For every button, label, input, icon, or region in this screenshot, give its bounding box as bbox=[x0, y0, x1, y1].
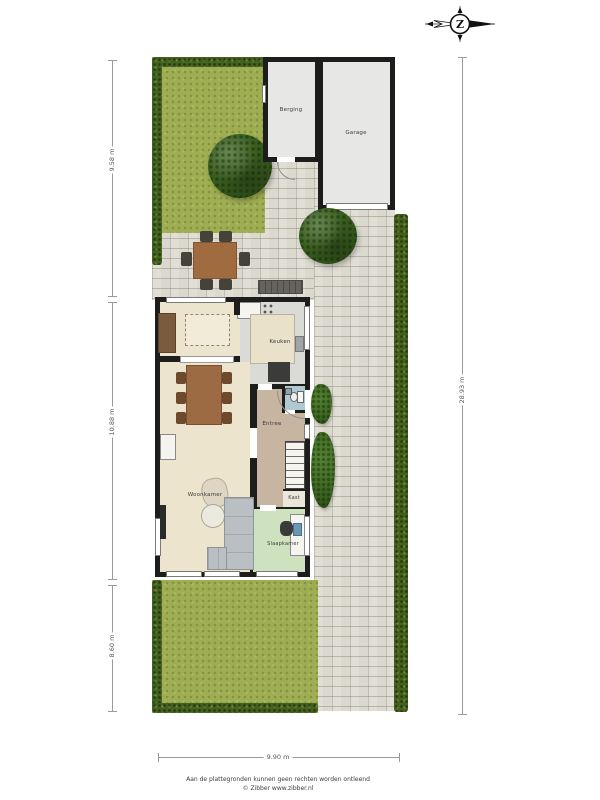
dimension-tick bbox=[108, 296, 117, 297]
keuken-label: Keuken bbox=[269, 339, 290, 345]
berging-window bbox=[262, 85, 266, 103]
footer: Aan de plattegronden kunnen geen rechten… bbox=[78, 775, 478, 794]
dimension-tick bbox=[108, 60, 117, 61]
window-bottom-bedroom bbox=[256, 571, 298, 577]
outdoor-chair bbox=[219, 279, 232, 290]
corner-sofa bbox=[207, 547, 227, 570]
desk-chair bbox=[280, 521, 293, 536]
dimension-tick bbox=[458, 57, 467, 58]
opening-kitchen-hall bbox=[258, 384, 272, 390]
laptop-icon bbox=[293, 523, 302, 536]
footer-credit: © Zibber www.zibber.nl bbox=[78, 784, 478, 793]
dimension-tick bbox=[158, 753, 159, 762]
outdoor-chair bbox=[181, 252, 192, 266]
tv-unit bbox=[160, 505, 166, 539]
dining-rug-dashed bbox=[185, 314, 230, 346]
dimension-tick bbox=[108, 579, 117, 580]
dimension-line-left-top bbox=[112, 60, 113, 297]
berging-label: Berging bbox=[280, 107, 303, 113]
opening-dining-living bbox=[180, 356, 234, 363]
compass-icon: Z bbox=[424, 4, 496, 44]
bush-icon bbox=[311, 432, 335, 508]
dining-chair bbox=[222, 372, 232, 384]
side-table-round bbox=[201, 504, 225, 528]
toilet-sink bbox=[285, 388, 292, 395]
kitchen-appliance bbox=[295, 336, 304, 352]
hedge-bottom-left bbox=[152, 580, 162, 713]
dimension-tick bbox=[399, 753, 400, 762]
dining-chair bbox=[176, 372, 186, 384]
closet-wall bbox=[283, 489, 305, 491]
dimension-line-left-middle bbox=[112, 302, 113, 580]
dimension-label-left-middle: 10.88 m bbox=[107, 406, 117, 437]
slaapkamer-label: Slaapkamer bbox=[267, 541, 299, 547]
window-kitchen-right bbox=[304, 306, 310, 350]
dimension-label-left-bottom: 8.60 m bbox=[107, 633, 117, 660]
dining-chair bbox=[176, 412, 186, 424]
compass-letter: Z bbox=[456, 18, 464, 31]
hedge-top bbox=[152, 57, 265, 67]
staircase bbox=[285, 441, 305, 489]
dimension-label-right: 28.93 m bbox=[457, 374, 467, 405]
front-door-gap bbox=[305, 390, 310, 418]
garden-bench bbox=[258, 280, 303, 294]
opening-living-hall bbox=[250, 428, 257, 458]
hedge-right bbox=[394, 214, 408, 712]
dimension-tick bbox=[108, 585, 117, 586]
hedge-bottom bbox=[152, 703, 318, 713]
outdoor-chair bbox=[200, 279, 213, 290]
window-bottom-2 bbox=[204, 571, 240, 577]
window-hall-right bbox=[304, 424, 310, 439]
sideboard bbox=[158, 313, 176, 353]
dining-chair bbox=[176, 392, 186, 404]
corner-sofa bbox=[224, 497, 254, 570]
dimension-tick bbox=[108, 711, 117, 712]
dining-table bbox=[186, 365, 222, 425]
cabinet bbox=[160, 434, 176, 460]
woonkamer-label: Woonkamer bbox=[188, 492, 223, 498]
outdoor-chair bbox=[200, 231, 213, 242]
hallway-floor bbox=[257, 443, 285, 507]
floorplan-canvas: Berging Garage bbox=[0, 0, 600, 800]
dimension-label-left-top: 9.58 m bbox=[107, 147, 117, 174]
outdoor-chair bbox=[239, 252, 250, 266]
dimension-tick bbox=[458, 714, 467, 715]
window-bottom-1 bbox=[166, 571, 202, 577]
garage-label: Garage bbox=[345, 130, 366, 136]
toilet-icon bbox=[297, 391, 304, 403]
dimension-label-bottom: 9.90 m bbox=[264, 753, 293, 761]
kitchen-cooker-unit bbox=[268, 362, 290, 382]
kast-label: Kast bbox=[288, 495, 300, 501]
dining-chair bbox=[222, 392, 232, 404]
garden-bottom bbox=[152, 580, 318, 713]
footer-disclaimer: Aan de plattegronden kunnen geen rechten… bbox=[78, 775, 478, 784]
hedge-left bbox=[152, 57, 162, 265]
opening-hall-bedroom bbox=[260, 505, 276, 511]
bush-icon bbox=[311, 384, 332, 424]
dimension-tick bbox=[108, 302, 117, 303]
tree-icon bbox=[299, 208, 357, 264]
entree-label: Entree bbox=[262, 421, 281, 427]
outdoor-chair bbox=[219, 231, 232, 242]
window-top bbox=[166, 297, 226, 303]
outdoor-table bbox=[193, 242, 237, 279]
wall-stub bbox=[234, 302, 240, 315]
dining-chair bbox=[222, 412, 232, 424]
